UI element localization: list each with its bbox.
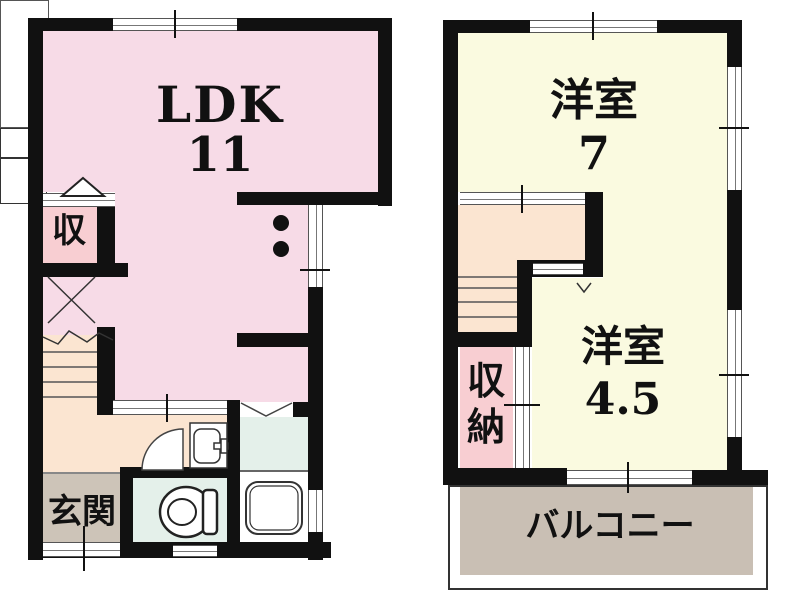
- room45-size-label: 4.5: [553, 378, 693, 422]
- wall-2f-left: [443, 20, 458, 485]
- tick-window-room7-right: [719, 127, 749, 129]
- room7-label: 洋室: [524, 79, 664, 123]
- entrance-label: 玄関: [44, 495, 120, 529]
- closet-label: 収: [52, 214, 86, 248]
- tick-storage-door: [504, 404, 540, 406]
- room45-door: [533, 263, 583, 275]
- wall-2f-bottom-left: [443, 468, 567, 485]
- stair-landing-area: [458, 205, 585, 260]
- ldk-label: LDK: [150, 80, 290, 130]
- storage-sliding-door: [515, 347, 530, 468]
- wall-storage-top: [443, 332, 532, 347]
- window-balcony: [567, 470, 692, 485]
- floorplan: LDK 11 収 玄関 洋室 7 洋室 4.5 収 納 バルコニー: [0, 0, 800, 600]
- stairs-area-2f: [458, 260, 517, 332]
- balcony-label: バルコニー: [470, 509, 750, 543]
- storage-label-char1: 収: [467, 362, 505, 400]
- tick-room7-door: [521, 185, 523, 213]
- tick-window-room7-top: [592, 12, 594, 40]
- room45-label: 洋室: [553, 326, 693, 368]
- tick-window-room45-right: [719, 374, 749, 376]
- room7-size-label: 7: [524, 130, 664, 176]
- wall-landing-right: [585, 192, 603, 263]
- wall-2f-right-a: [727, 20, 742, 67]
- wall-2f-bottom-right: [692, 470, 768, 485]
- ldk-size-label: 11: [150, 131, 290, 179]
- western-room7-area-right: [603, 192, 727, 278]
- storage-label-char2: 納: [467, 408, 505, 446]
- tick-window-balcony: [627, 462, 629, 493]
- wall-2f-right-b: [727, 190, 742, 310]
